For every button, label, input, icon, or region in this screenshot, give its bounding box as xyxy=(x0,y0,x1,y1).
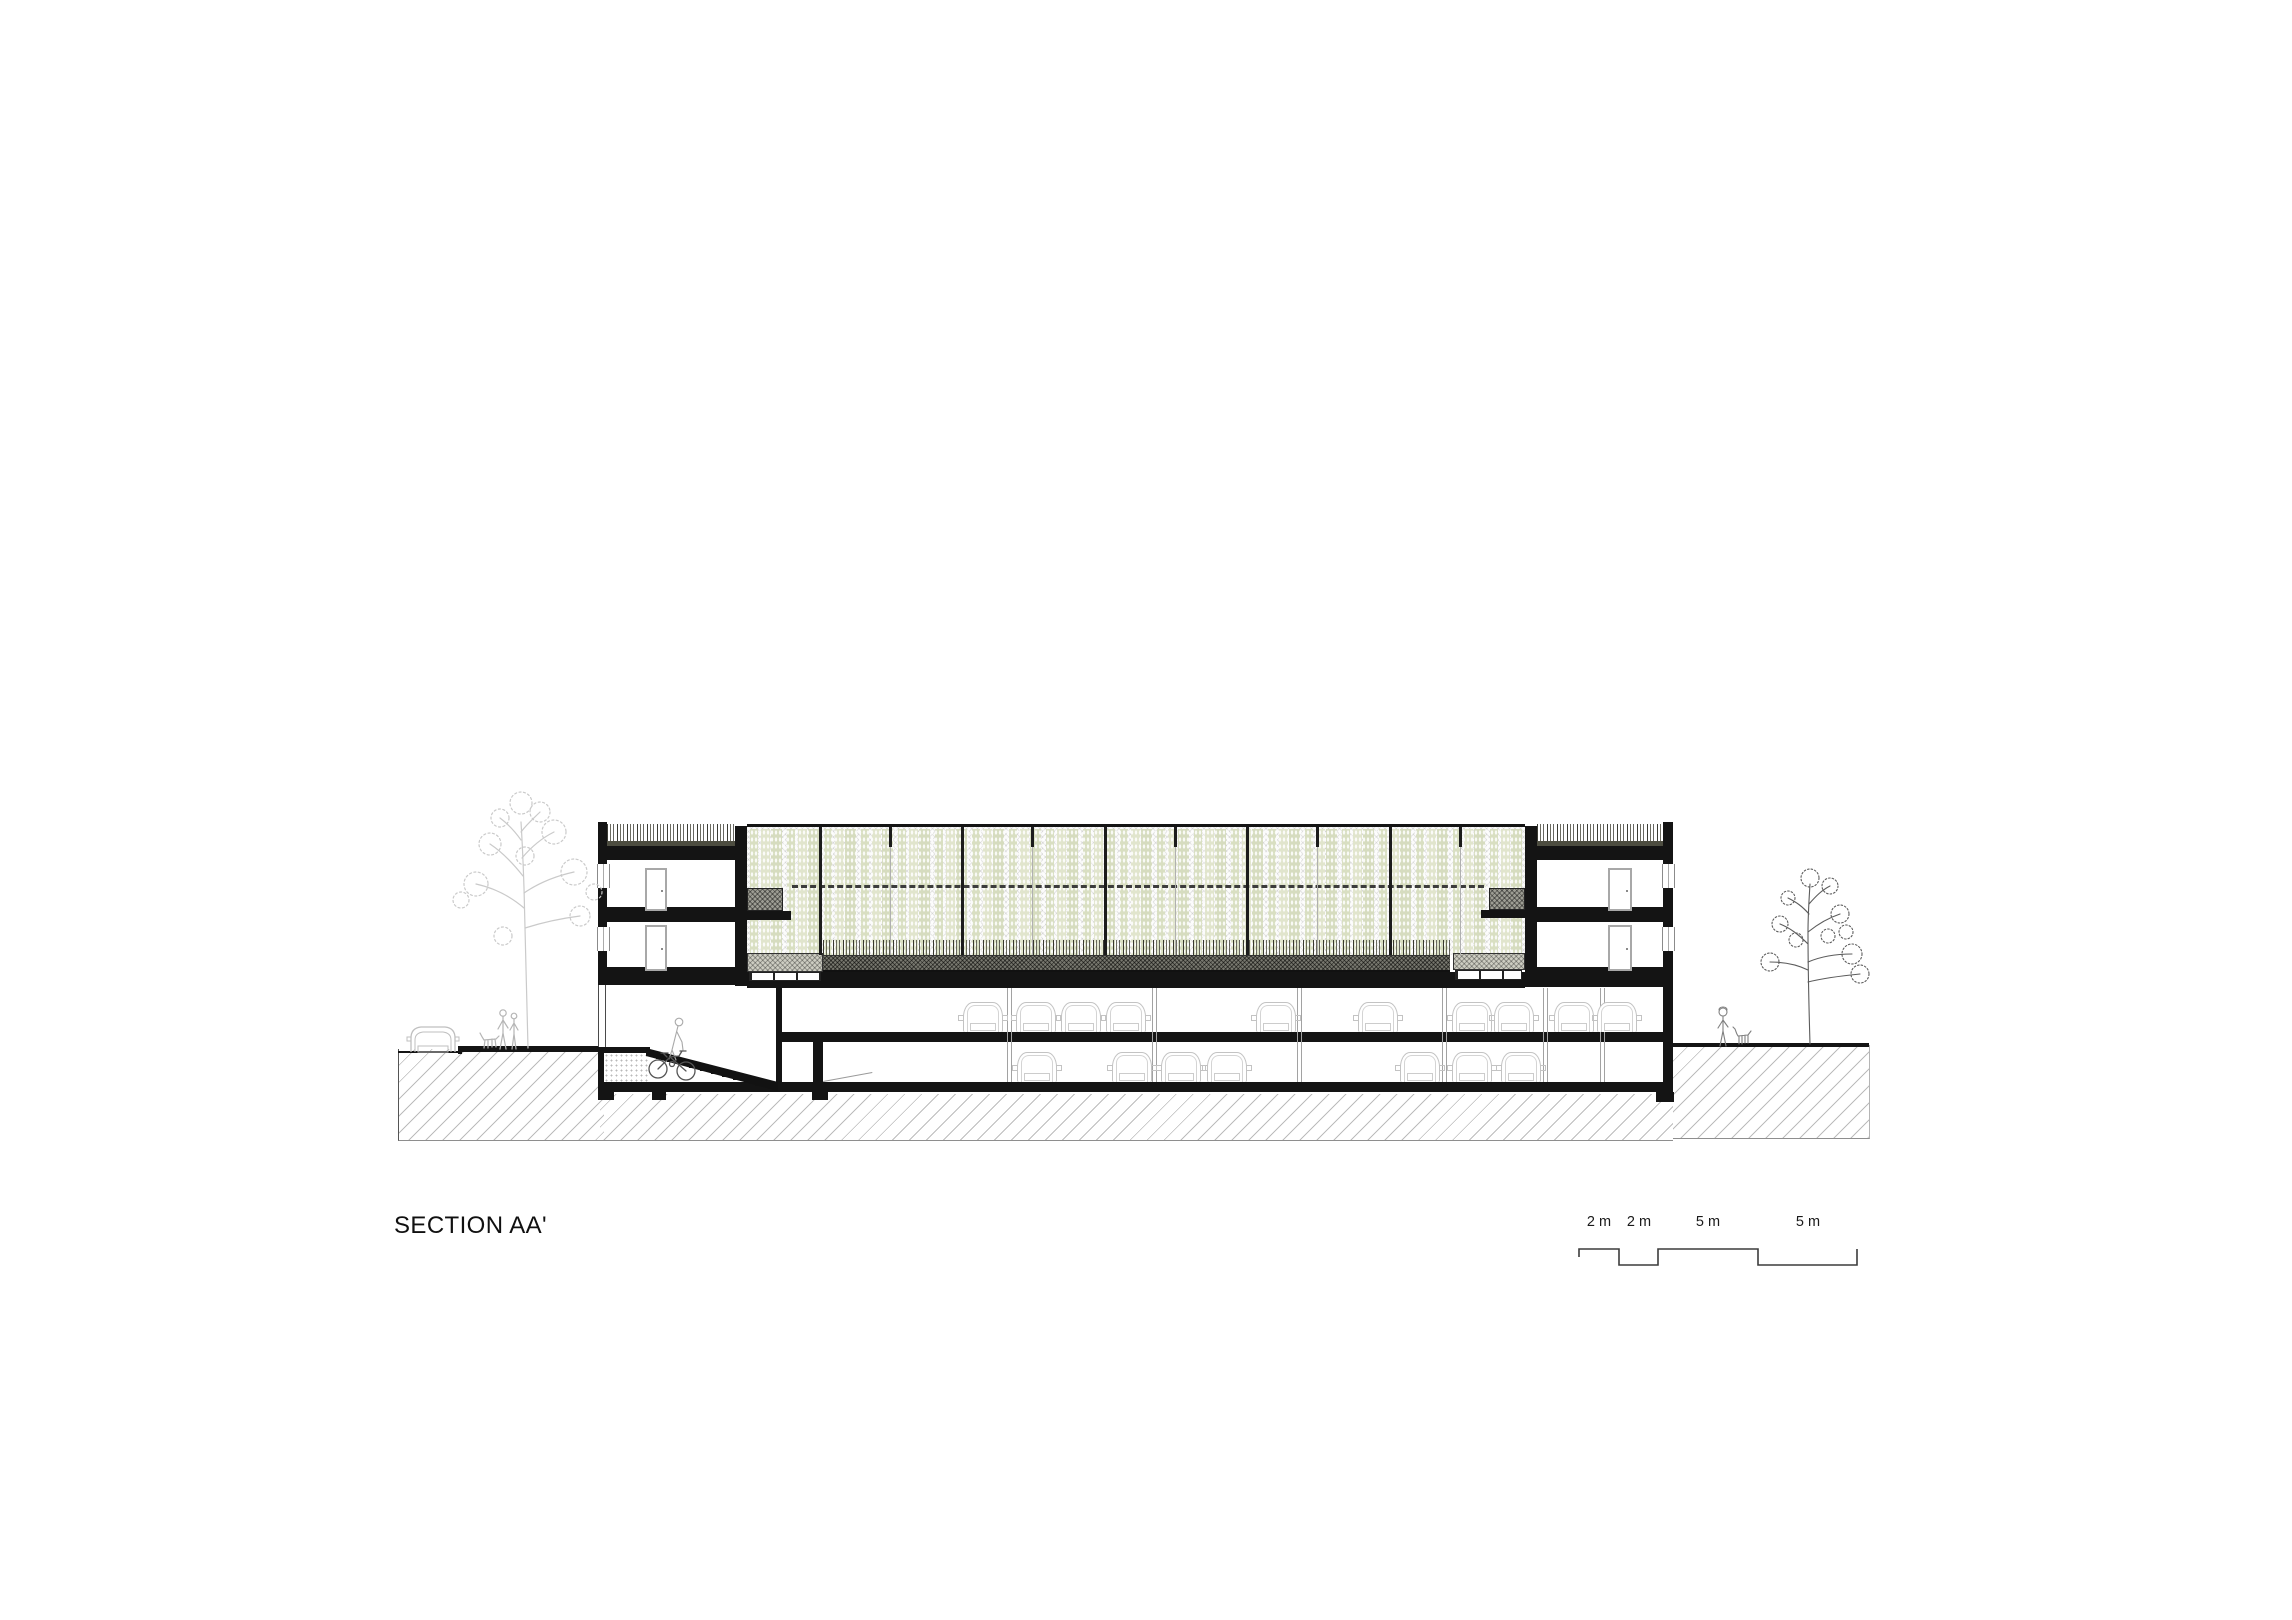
greenhouse-mullion-faint xyxy=(890,847,891,955)
scale-label-4: 5 m xyxy=(1786,1214,1830,1230)
car-mirror xyxy=(1202,1065,1208,1071)
greenhouse-mullion xyxy=(1389,827,1392,955)
greenhouse-roof-edge xyxy=(747,824,1525,827)
foundation-footing xyxy=(812,1090,828,1100)
car-mirror xyxy=(1592,1015,1598,1021)
greenhouse-mullion-stub xyxy=(1316,827,1319,847)
balcony-slab-left xyxy=(745,911,791,920)
parked-car xyxy=(1554,1002,1594,1032)
car-mirror xyxy=(1251,1015,1257,1021)
car-mirror xyxy=(1447,1015,1453,1021)
parking-level1-slab xyxy=(777,1032,1665,1042)
balcony-slab-right xyxy=(1481,910,1525,918)
street-car xyxy=(406,1019,462,1053)
car-mirror xyxy=(1056,1065,1062,1071)
parked-car xyxy=(1207,1052,1247,1082)
right-door-upper xyxy=(1608,868,1632,911)
parked-car xyxy=(963,1002,1003,1032)
parked-car xyxy=(1400,1052,1440,1082)
car-mirror xyxy=(1012,1065,1018,1071)
greenhouse-mullion-faint xyxy=(1317,847,1318,955)
foundation-footing xyxy=(1656,1092,1674,1102)
right-window-lower xyxy=(1662,927,1675,951)
car-mirror xyxy=(1395,1065,1401,1071)
greenhouse-mullion-stub xyxy=(1174,827,1177,847)
greenhouse-mullion xyxy=(819,827,822,955)
right-door-lower xyxy=(1608,925,1632,971)
parked-car xyxy=(1494,1002,1534,1032)
scale-label-2: 2 m xyxy=(1617,1214,1661,1230)
greenhouse-mullion-faint xyxy=(1032,847,1033,955)
parked-car xyxy=(1597,1002,1637,1032)
scale-bar xyxy=(1575,1245,1865,1271)
courtyard-podium-slab xyxy=(747,972,1525,988)
tree-right xyxy=(1756,870,1874,1046)
ground-planter-right xyxy=(1453,953,1525,970)
car-mirror xyxy=(1011,1015,1017,1021)
parked-car xyxy=(1106,1002,1146,1032)
foundation-footing xyxy=(598,1090,614,1100)
car-mirror xyxy=(1636,1015,1642,1021)
ground-planter-left xyxy=(747,953,823,972)
balcony-planter-left xyxy=(747,888,783,911)
parked-car xyxy=(1256,1002,1296,1032)
bicycle xyxy=(643,1012,707,1082)
parked-car xyxy=(1112,1052,1152,1082)
parked-car xyxy=(1358,1002,1398,1032)
car-mirror xyxy=(1295,1015,1301,1021)
car-mirror xyxy=(1447,1065,1453,1071)
car-mirror xyxy=(1156,1065,1162,1071)
car-mirror xyxy=(1002,1015,1008,1021)
scale-label-3: 5 m xyxy=(1686,1214,1730,1230)
parking-column xyxy=(1297,988,1302,1082)
car-mirror xyxy=(1056,1015,1062,1021)
car-mirror xyxy=(1107,1065,1113,1071)
parked-car xyxy=(1452,1052,1492,1082)
car-mirror xyxy=(1145,1015,1151,1021)
greenhouse-mullion-stub xyxy=(889,827,892,847)
ramp-end-wall xyxy=(813,1032,823,1092)
car-mirror xyxy=(1489,1015,1495,1021)
left-courtyard-column xyxy=(735,826,747,986)
car-mirror xyxy=(1101,1015,1107,1021)
scale-label-1: 2 m xyxy=(1577,1214,1621,1230)
parked-car xyxy=(1017,1052,1057,1082)
right-mid-floor-slab xyxy=(1525,907,1673,922)
right-ground-slab xyxy=(1525,967,1673,987)
car-mirror xyxy=(1439,1065,1445,1071)
right-window-upper xyxy=(1662,864,1675,888)
section-drawing-canvas: SECTION AA' 2 m 2 m 5 m 5 m xyxy=(0,0,2292,1620)
balcony-planter-right xyxy=(1489,888,1525,910)
car-mirror xyxy=(1397,1015,1403,1021)
right-roof-slab xyxy=(1525,846,1673,860)
planter-vent-right xyxy=(1455,970,1522,980)
car-mirror xyxy=(1549,1015,1555,1021)
car-mirror xyxy=(1540,1065,1546,1071)
greenhouse-mullion xyxy=(961,827,964,955)
parked-car xyxy=(1016,1002,1056,1032)
greenhouse-mullion xyxy=(1246,827,1249,955)
left-door-upper xyxy=(645,868,667,911)
left-door-lower xyxy=(645,925,667,971)
planter-vent-left xyxy=(749,972,821,981)
courtyard-planting xyxy=(750,829,1522,955)
greenhouse-mullion xyxy=(1104,827,1107,955)
greenhouse-mullion-faint xyxy=(1175,847,1176,955)
car-mirror xyxy=(958,1015,964,1021)
greenhouse-mullion-faint xyxy=(1460,847,1461,955)
car-mirror xyxy=(1496,1065,1502,1071)
parking-internal-ramp xyxy=(823,1072,872,1082)
pedestrians-left xyxy=(476,1006,548,1052)
ground-hatch-left xyxy=(398,1049,604,1141)
drawing-title: SECTION AA' xyxy=(394,1212,547,1240)
right-parapet-wall xyxy=(1663,822,1673,985)
greenhouse-mullion-stub xyxy=(1459,827,1462,847)
car-mirror xyxy=(1533,1015,1539,1021)
greenhouse-mullion-stub xyxy=(1031,827,1034,847)
car-mirror xyxy=(1246,1065,1252,1071)
ground-hatch-right xyxy=(1673,1045,1870,1139)
parked-car xyxy=(1452,1002,1492,1032)
courtyard-guide-wire xyxy=(792,885,1484,888)
parked-car xyxy=(1061,1002,1101,1032)
parked-car xyxy=(1501,1052,1541,1082)
parked-car xyxy=(1161,1052,1201,1082)
car-mirror xyxy=(1353,1015,1359,1021)
pedestrian-right xyxy=(1710,1004,1756,1048)
courtyard-soil-bed xyxy=(823,955,1450,972)
foundation-footing xyxy=(652,1090,666,1100)
